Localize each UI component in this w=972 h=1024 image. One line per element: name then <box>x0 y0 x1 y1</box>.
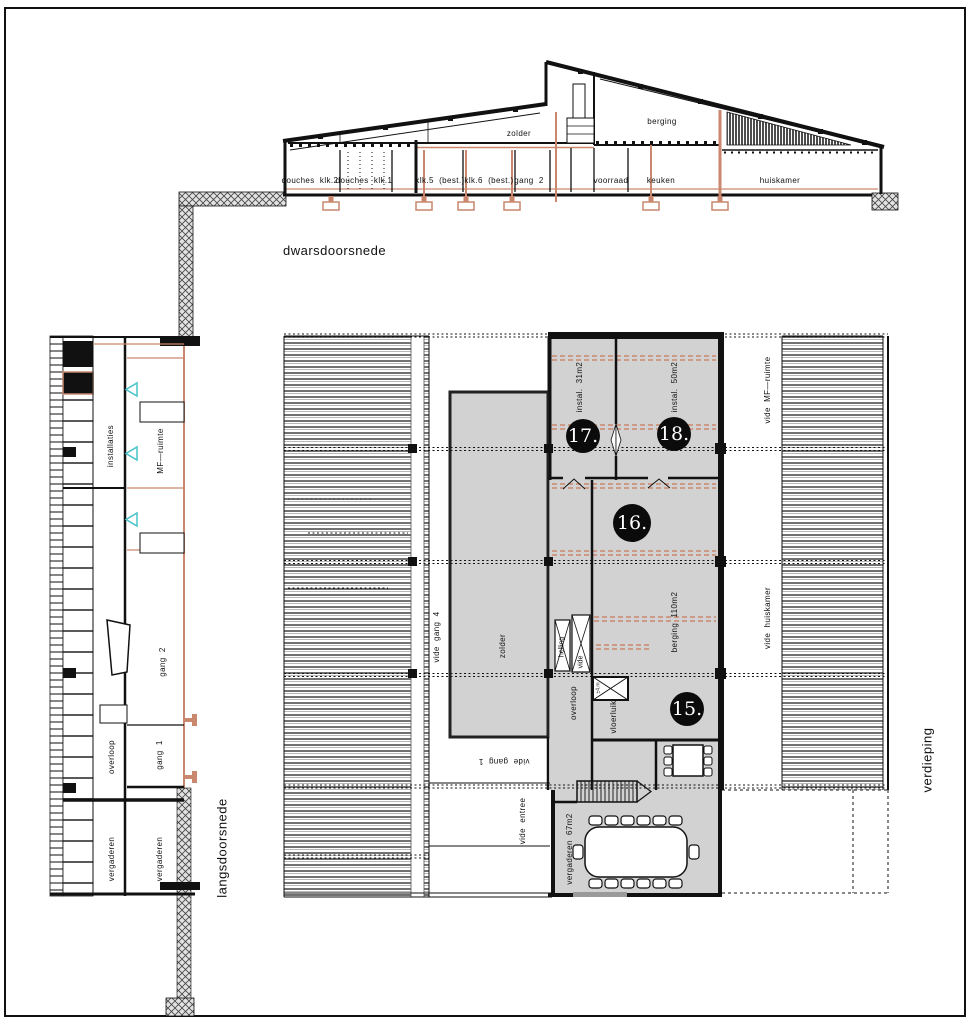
cross-section-title: dwarsdoorsnede <box>283 243 386 258</box>
label-vergaderen-67: vergaderen 67m2 <box>566 813 574 884</box>
label-berging-section: berging <box>647 118 677 126</box>
ground-connector <box>179 192 286 340</box>
anchor-ties <box>184 714 197 783</box>
label-gang2-section: gang 2 <box>514 177 544 185</box>
drawing-linework <box>0 0 972 1024</box>
label-huiskamer: huiskamer <box>760 177 801 185</box>
label-vide-mf: vide MF—ruimte <box>764 357 772 424</box>
label-gang2-long: gang 2 <box>159 647 167 677</box>
cross-section-drawing <box>283 62 898 210</box>
floor-plan-title: verdieping <box>920 728 935 793</box>
label-mf-ruimte: MF—ruimte <box>157 428 165 473</box>
stair-flight <box>107 620 130 675</box>
stair <box>577 781 637 802</box>
label-vide-huiskamer: vide huiskamer <box>764 587 772 649</box>
label-gang1-long: gang 1 <box>156 740 164 770</box>
label-voorraad: voorraad <box>594 177 629 185</box>
small-table <box>664 745 712 776</box>
label-douches-klk1: douches klk.1 <box>336 177 393 185</box>
label-vergaderen-right: vergaderen <box>156 837 164 881</box>
label-instal-50: instal. 50m2 <box>671 362 679 413</box>
dashed-terrace <box>722 790 888 893</box>
label-zolder-section: zolder <box>507 130 531 138</box>
room-dividers <box>340 148 628 192</box>
roof-insulation-hatch <box>727 112 851 145</box>
long-section-drawing <box>50 336 200 1016</box>
label-overloop-plan: overloop <box>570 686 578 720</box>
label-helling: helling <box>559 637 566 657</box>
label-zolder-plan: zolder <box>499 634 507 658</box>
label-luik-dim: ±4.m <box>597 682 602 693</box>
vent-markers <box>126 383 137 526</box>
column-footings <box>323 196 728 210</box>
long-section-title: langsdoorsnede <box>215 798 230 898</box>
label-vide-gang4: vide gang 4 <box>433 611 441 662</box>
floor-plan-drawing <box>284 332 888 897</box>
label-douches-klk2: douches klk.2 <box>282 177 339 185</box>
label-instal-31: instal. 31m2 <box>576 362 584 413</box>
label-berging-110: berging 110m2 <box>671 592 679 653</box>
label-vergaderen-left: vergaderen <box>108 837 116 881</box>
label-installaties: installaties <box>107 425 115 467</box>
label-klk5: klk.5 (best.) <box>415 177 464 185</box>
label-vloerluik: vloerluik <box>610 701 618 734</box>
zolder-room <box>450 392 548 737</box>
label-vide-entree: vide entree <box>519 798 527 845</box>
room-marker-16: 16. <box>613 504 651 542</box>
label-overloop-long: overloop <box>108 740 116 774</box>
label-keuken: keuken <box>647 177 675 185</box>
label-vide-gang1: vide gang 1 <box>478 757 529 765</box>
room-marker-17: 17. <box>566 419 600 453</box>
label-vide: vide <box>578 656 585 669</box>
label-klk6: klk.6 (best.) <box>464 177 513 185</box>
room-marker-18: 18. <box>657 417 691 451</box>
room-marker-15: 15. <box>670 692 704 726</box>
architectural-drawing-sheet: { "colors": {"salmon": "#c9876d", "cyan"… <box>0 0 972 1024</box>
